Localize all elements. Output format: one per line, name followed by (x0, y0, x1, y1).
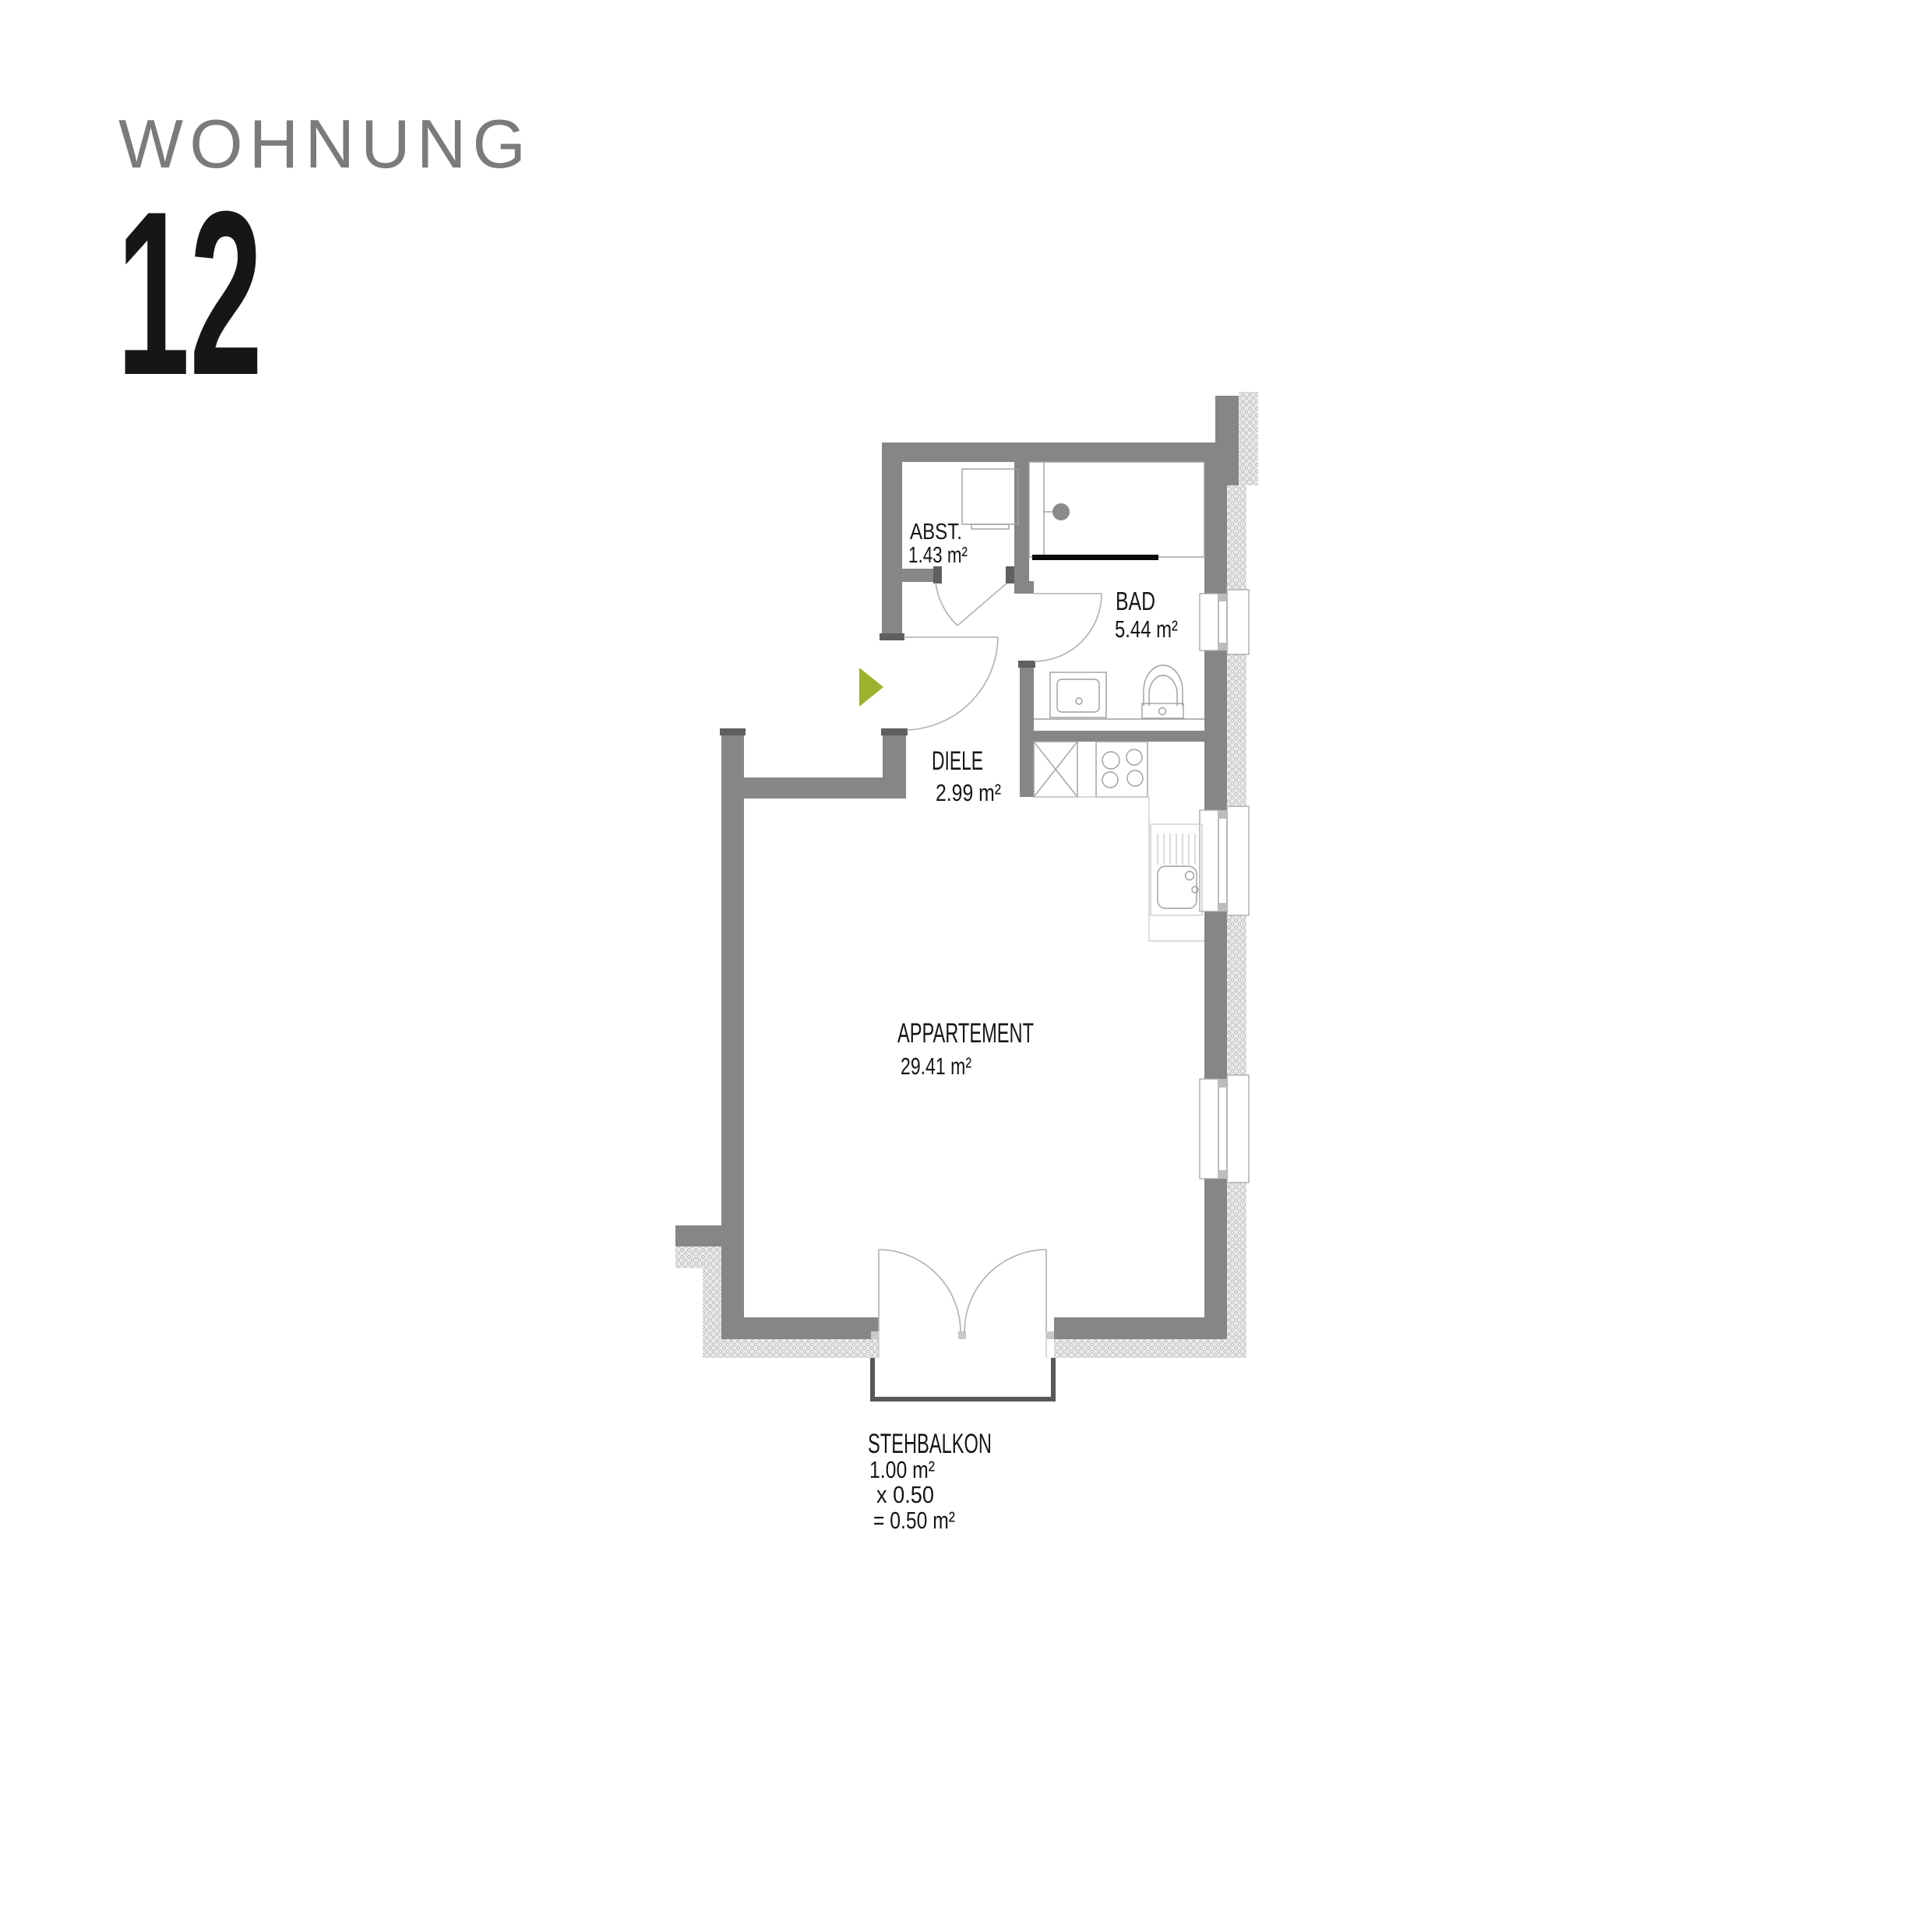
label-bad-area: 5.44 m² (1115, 615, 1178, 643)
unit-number: 12 (117, 162, 263, 424)
shower-screen (1032, 555, 1158, 560)
label-abst-name: ABST. (910, 520, 962, 545)
label-diele-name: DIELE (932, 746, 983, 776)
label-appartement-name: APPARTEMENT (897, 1018, 1034, 1049)
kitchen-window (1200, 806, 1249, 915)
floorplan-page: WOHNUNG 12 (0, 0, 1932, 1932)
label-bad-name: BAD (1116, 587, 1155, 615)
bad-window (1200, 590, 1249, 654)
label-stehbalkon-factor: x 0.50 (876, 1481, 934, 1508)
shower-head-icon (1052, 503, 1070, 520)
floorplan-canvas: WOHNUNG 12 (0, 0, 1932, 1932)
label-stehbalkon-result: = 0.50 m² (873, 1507, 955, 1534)
label-appartement-area: 29.41 m² (901, 1052, 971, 1080)
page-background (0, 0, 1932, 1932)
label-stehbalkon-name: STEHBALKON (868, 1429, 992, 1459)
label-abst-area: 1.43 m² (908, 543, 968, 568)
label-stehbalkon-area: 1.00 m² (869, 1456, 935, 1483)
label-diele-area: 2.99 m² (936, 779, 1001, 806)
living-window (1200, 1075, 1249, 1183)
